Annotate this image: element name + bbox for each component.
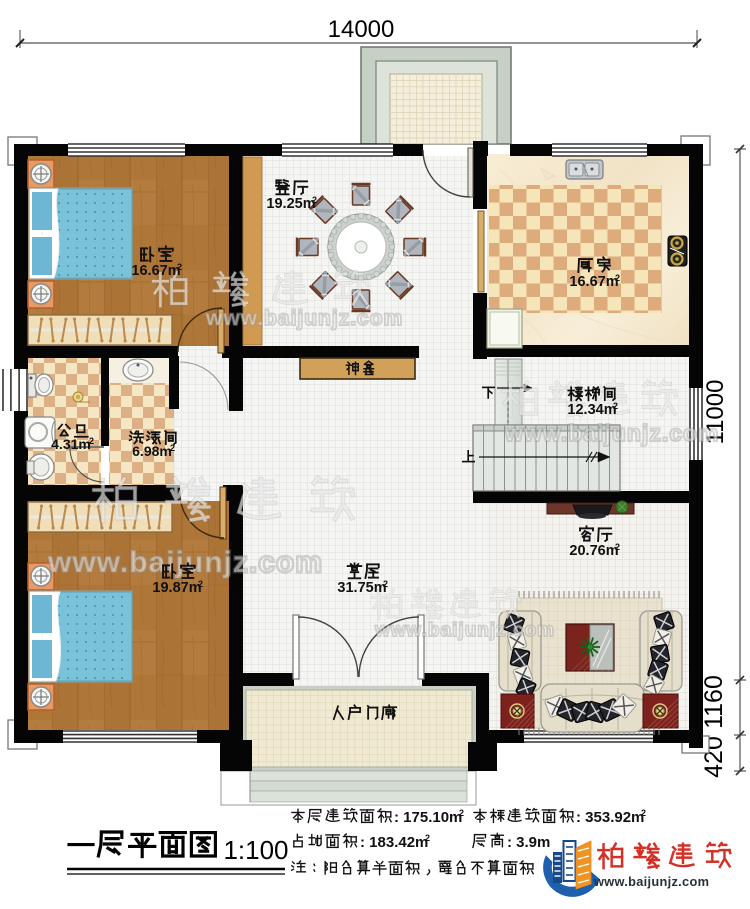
svg-text:2: 2	[615, 542, 620, 552]
svg-text:16.67m: 16.67m	[131, 263, 180, 279]
svg-text:19.25m: 19.25m	[266, 196, 315, 212]
svg-text:2: 2	[615, 273, 620, 283]
svg-text:31.75m: 31.75m	[337, 580, 386, 596]
svg-text:2: 2	[641, 808, 646, 818]
svg-text:4.31m: 4.31m	[51, 436, 91, 452]
svg-text:2: 2	[425, 833, 430, 843]
svg-text:www.baijunjz.com: www.baijunjz.com	[593, 874, 709, 889]
svg-text:19.87m: 19.87m	[152, 580, 201, 596]
svg-text:2: 2	[613, 401, 618, 411]
svg-text:12.34m: 12.34m	[567, 402, 616, 418]
svg-text:2: 2	[177, 262, 182, 272]
svg-text:www.baijunjz.com: www.baijunjz.com	[374, 620, 555, 641]
svg-text:20.76m: 20.76m	[569, 543, 618, 559]
svg-text:www.baijunjz.com: www.baijunjz.com	[47, 546, 323, 579]
svg-text:14000: 14000	[328, 16, 395, 43]
svg-text:: 3.9m: : 3.9m	[507, 834, 550, 851]
svg-text:2: 2	[89, 436, 94, 446]
svg-text:2: 2	[312, 195, 317, 205]
svg-text:2: 2	[459, 808, 464, 818]
svg-text:2: 2	[170, 443, 175, 453]
svg-text:www.baijunjz.com: www.baijunjz.com	[205, 307, 403, 330]
svg-text:16.67m: 16.67m	[569, 274, 618, 290]
svg-text:1160: 1160	[700, 675, 728, 729]
svg-text:1:100: 1:100	[223, 835, 288, 865]
svg-text:2: 2	[198, 579, 203, 589]
svg-text:: 175.10m: : 175.10m	[394, 809, 462, 826]
svg-text:: 353.92m: : 353.92m	[576, 809, 644, 826]
svg-text:www.baijunjz.com: www.baijunjz.com	[504, 420, 720, 446]
svg-text:6.98m: 6.98m	[132, 443, 172, 459]
svg-text:2: 2	[383, 579, 388, 589]
svg-text:: 183.42m: : 183.42m	[360, 834, 428, 851]
